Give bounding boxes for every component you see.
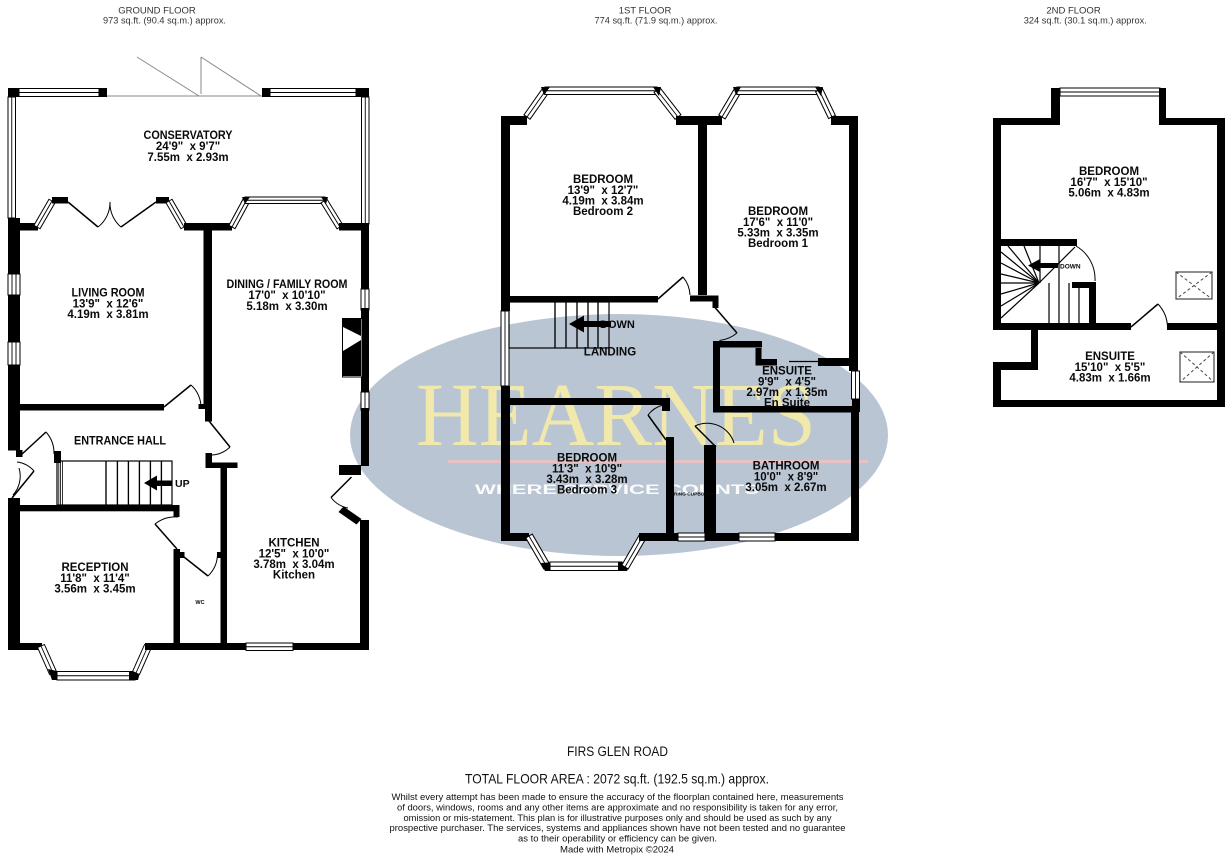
- svg-text:Whilst every attempt has been: Whilst every attempt has been made to en…: [392, 792, 845, 802]
- svg-text:Made with Metropix ©2024: Made with Metropix ©2024: [560, 845, 674, 855]
- svg-text:324 sq.ft. (30.1 sq.m.) approx: 324 sq.ft. (30.1 sq.m.) approx.: [1024, 16, 1147, 27]
- svg-text:FIRS GLEN ROAD: FIRS GLEN ROAD: [567, 744, 668, 759]
- svg-text:7.55m x 2.93m: 7.55m x 2.93m: [147, 152, 228, 164]
- svg-text:973 sq.ft. (90.4 sq.m.) approx: 973 sq.ft. (90.4 sq.m.) approx.: [103, 16, 226, 27]
- svg-text:En Suite: En Suite: [764, 398, 810, 410]
- svg-text:774 sq.ft. (71.9 sq.m.) approx: 774 sq.ft. (71.9 sq.m.) approx.: [595, 16, 718, 27]
- svg-text:5.06m x 4.83m: 5.06m x 4.83m: [1068, 188, 1149, 200]
- svg-text:as to their operability or eff: as to their operability or efficiency ca…: [518, 834, 717, 844]
- svg-text:3.56m x 3.45m: 3.56m x 3.45m: [54, 584, 135, 596]
- svg-text:Bedroom 2: Bedroom 2: [573, 206, 633, 218]
- svg-text:Kitchen: Kitchen: [273, 570, 315, 582]
- svg-text:DOWN: DOWN: [1060, 264, 1081, 271]
- svg-text:4.19m x 3.81m: 4.19m x 3.81m: [67, 309, 148, 321]
- svg-text:omission or mis-statement. Thi: omission or mis-statement. This plan is …: [404, 813, 833, 823]
- svg-text:3.05m x 2.67m: 3.05m x 2.67m: [745, 482, 826, 494]
- svg-text:5.18m x 3.30m: 5.18m x 3.30m: [246, 301, 327, 313]
- svg-text:HEARNES: HEARNES: [416, 366, 816, 465]
- svg-text:UP: UP: [175, 478, 190, 490]
- svg-text:4.83m x 1.66m: 4.83m x 1.66m: [1069, 373, 1150, 385]
- svg-text:Bedroom 1: Bedroom 1: [748, 238, 809, 250]
- svg-text:AIRING CUPBOARD: AIRING CUPBOARD: [669, 492, 715, 498]
- svg-text:ENTRANCE HALL: ENTRANCE HALL: [74, 436, 166, 448]
- svg-text:of doors, windows, rooms and a: of doors, windows, rooms and any other i…: [397, 802, 838, 812]
- svg-text:TOTAL FLOOR AREA : 2072 sq.ft.: TOTAL FLOOR AREA : 2072 sq.ft. (192.5 sq…: [465, 771, 769, 787]
- svg-text:Bedroom 3: Bedroom 3: [557, 485, 617, 497]
- svg-text:WC: WC: [195, 600, 204, 606]
- svg-text:prospective purchaser. The ser: prospective purchaser. The services, sys…: [390, 823, 846, 833]
- svg-text:LANDING: LANDING: [584, 347, 636, 359]
